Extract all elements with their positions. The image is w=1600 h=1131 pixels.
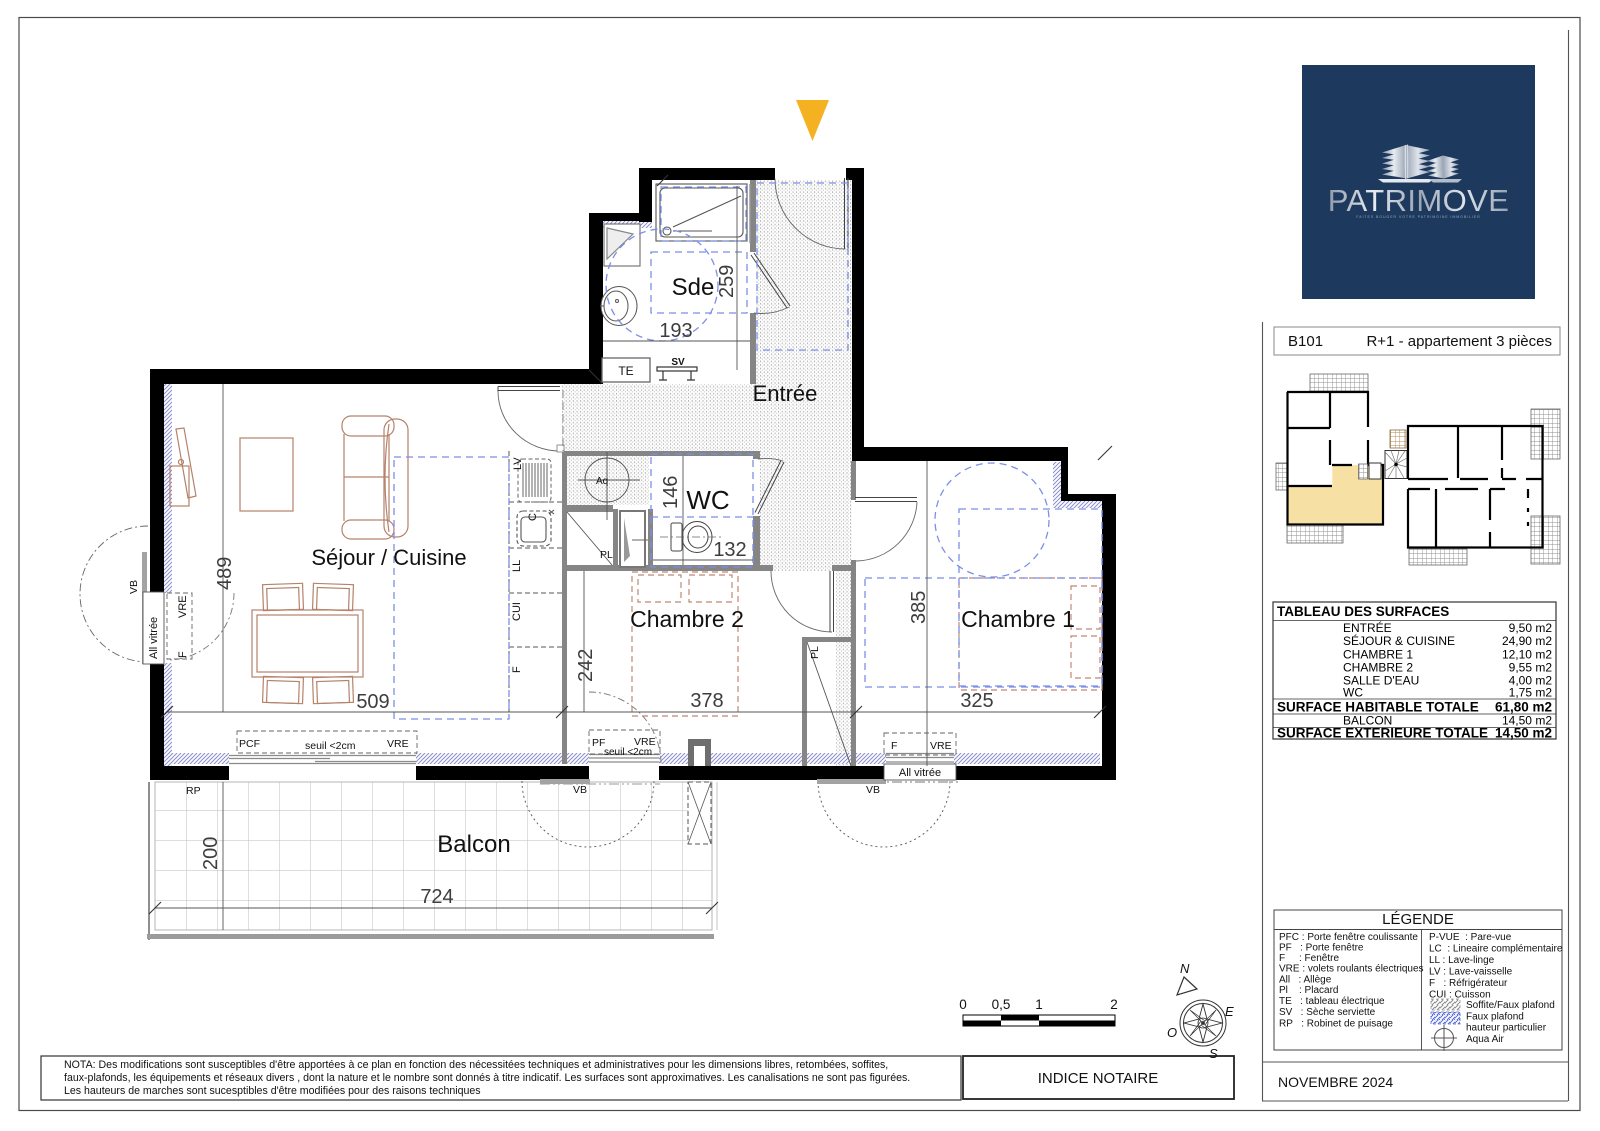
svg-text:Entrée: Entrée	[753, 381, 818, 406]
svg-text:385: 385	[908, 591, 930, 624]
svg-text:VRE: VRE	[387, 738, 409, 750]
svg-text:Aqua Air: Aqua Air	[1466, 1034, 1504, 1045]
svg-text:14,50 m2: 14,50 m2	[1495, 726, 1552, 741]
svg-text:LV : Lave-vaisselle: LV : Lave-vaisselle	[1429, 967, 1513, 978]
svg-text:ENTRÉE: ENTRÉE	[1343, 620, 1392, 635]
svg-text:E: E	[1225, 1004, 1234, 1019]
svg-text:378: 378	[690, 690, 723, 712]
svg-text:509: 509	[356, 691, 389, 713]
svg-text:259: 259	[716, 265, 738, 298]
svg-text:PF : Porte fenêtre: PF : Porte fenêtre	[1279, 943, 1364, 954]
svg-text:PL: PL	[809, 646, 821, 659]
svg-text:146: 146	[660, 476, 682, 509]
svg-text:F : Réfrigérateur: F : Réfrigérateur	[1429, 978, 1508, 989]
svg-text:C: C	[527, 513, 539, 521]
svg-text:CHAMBRE 2: CHAMBRE 2	[1343, 661, 1413, 675]
svg-text:PFC : Porte fenêtre coulissant: PFC : Porte fenêtre coulissante	[1279, 932, 1418, 943]
svg-text:Chambre 1: Chambre 1	[961, 606, 1075, 632]
svg-text:PATRIMOVE: PATRIMOVE	[1328, 183, 1510, 218]
svg-text:242: 242	[575, 649, 597, 682]
svg-text:SV : Sèche serviette: SV : Sèche serviette	[1279, 1007, 1376, 1018]
svg-text:VB: VB	[128, 580, 140, 594]
svg-text:9,50 m2: 9,50 m2	[1509, 621, 1553, 635]
svg-text:489: 489	[214, 557, 236, 590]
svg-text:B101: B101	[1288, 333, 1323, 350]
svg-text:NOTA: Des modifications sont s: NOTA: Des modifications sont susceptible…	[64, 1059, 888, 1071]
svg-text:TE : tableau électrique: TE : tableau électrique	[1279, 996, 1385, 1007]
svg-text:P-VUE : Pare-vue: P-VUE : Pare-vue	[1429, 932, 1512, 943]
svg-text:F: F	[891, 740, 897, 752]
svg-text:1: 1	[1035, 997, 1043, 1012]
svg-text:faux-plafonds, les équipements: faux-plafonds, les équipements et réseau…	[64, 1072, 910, 1084]
svg-text:VRE: VRE	[930, 740, 952, 752]
svg-text:Sde: Sde	[672, 274, 715, 301]
svg-text:All : Allège: All : Allège	[1279, 975, 1332, 986]
svg-text:All vitrée: All vitrée	[148, 617, 160, 659]
svg-text:N: N	[1180, 961, 1190, 976]
svg-text:2: 2	[1110, 997, 1118, 1012]
svg-text:LV: LV	[512, 457, 524, 470]
svg-text:Les hauteurs de marches sont s: Les hauteurs de marches sont sucesptible…	[64, 1085, 481, 1097]
svg-text:FAITES BOUGER VOTRE PATRIMOINE: FAITES BOUGER VOTRE PATRIMOINE IMMOBILIE…	[1356, 215, 1480, 219]
svg-text:seuil <2cm: seuil <2cm	[305, 740, 356, 752]
svg-text:724: 724	[420, 886, 453, 908]
svg-text:SV: SV	[671, 357, 685, 368]
svg-text:F : Fenêtre: F : Fenêtre	[1279, 953, 1339, 964]
svg-text:S: S	[1209, 1046, 1218, 1061]
svg-text:200: 200	[200, 837, 222, 870]
svg-text:Faux plafond: Faux plafond	[1466, 1012, 1524, 1023]
svg-text:hauteur particulier: hauteur particulier	[1466, 1023, 1547, 1034]
svg-text:Pl : Placard: Pl : Placard	[1279, 985, 1338, 996]
svg-text:TE: TE	[618, 364, 633, 378]
svg-text:Aq: Aq	[596, 476, 608, 487]
svg-text:CUI: CUI	[511, 602, 523, 621]
svg-text:1,75 m2: 1,75 m2	[1509, 686, 1553, 700]
svg-text:PCF: PCF	[239, 738, 260, 750]
svg-text:VB: VB	[866, 784, 880, 796]
svg-text:LC : Lineaire complémentaire: LC : Lineaire complémentaire	[1429, 944, 1563, 955]
svg-text:VB: VB	[573, 784, 587, 796]
svg-text:193: 193	[659, 320, 692, 342]
svg-text:LL : Lave-linge: LL : Lave-linge	[1429, 955, 1495, 966]
svg-text:SURFACE HABITABLE TOTALE: SURFACE HABITABLE TOTALE	[1277, 700, 1479, 715]
svg-text:RP: RP	[186, 785, 201, 797]
svg-text:O: O	[1167, 1025, 1177, 1040]
svg-text:VRE: VRE	[177, 595, 189, 618]
svg-text:LÉGENDE: LÉGENDE	[1382, 911, 1454, 928]
svg-text:TABLEAU DES SURFACES: TABLEAU DES SURFACES	[1277, 604, 1449, 619]
svg-text:Balcon: Balcon	[437, 831, 510, 858]
svg-text:0: 0	[959, 997, 967, 1012]
svg-text:seuil <2cm: seuil <2cm	[604, 747, 652, 758]
svg-text:SURFACE EXTERIEURE TOTALE: SURFACE EXTERIEURE TOTALE	[1277, 726, 1488, 741]
svg-text:325: 325	[960, 690, 993, 712]
svg-text:NOVEMBRE 2024: NOVEMBRE 2024	[1278, 1074, 1393, 1090]
svg-text:0,5: 0,5	[992, 997, 1011, 1012]
svg-text:VRE : volets roulants électriq: VRE : volets roulants électriques	[1279, 964, 1424, 975]
svg-text:132: 132	[713, 539, 746, 561]
svg-text:WC: WC	[686, 485, 729, 515]
svg-text:INDICE NOTAIRE: INDICE NOTAIRE	[1038, 1070, 1159, 1087]
svg-text:F: F	[177, 651, 189, 658]
svg-text:VRE: VRE	[634, 736, 656, 748]
svg-text:F: F	[511, 666, 523, 673]
svg-text:R+1 - appartement 3 pièces: R+1 - appartement 3 pièces	[1366, 333, 1552, 350]
svg-text:Soffite/Faux plafond: Soffite/Faux plafond	[1466, 1000, 1555, 1011]
svg-text:12,10 m2: 12,10 m2	[1502, 648, 1552, 662]
svg-text:All vitrée: All vitrée	[899, 767, 941, 779]
svg-text:Chambre 2: Chambre 2	[630, 606, 744, 632]
svg-text:CHAMBRE 1: CHAMBRE 1	[1343, 648, 1413, 662]
svg-text:9,55 m2: 9,55 m2	[1509, 661, 1553, 675]
svg-text:SÉJOUR & CUISINE: SÉJOUR & CUISINE	[1343, 633, 1455, 648]
svg-text:61,80 m2: 61,80 m2	[1495, 700, 1552, 715]
svg-text:WC: WC	[1343, 686, 1363, 700]
svg-text:Séjour / Cuisine: Séjour / Cuisine	[311, 545, 466, 570]
svg-text:24,90 m2: 24,90 m2	[1502, 634, 1552, 648]
svg-text:RP : Robinet de puisage: RP : Robinet de puisage	[1279, 1019, 1393, 1030]
svg-text:LL: LL	[511, 560, 523, 572]
svg-text:PL: PL	[600, 549, 613, 561]
